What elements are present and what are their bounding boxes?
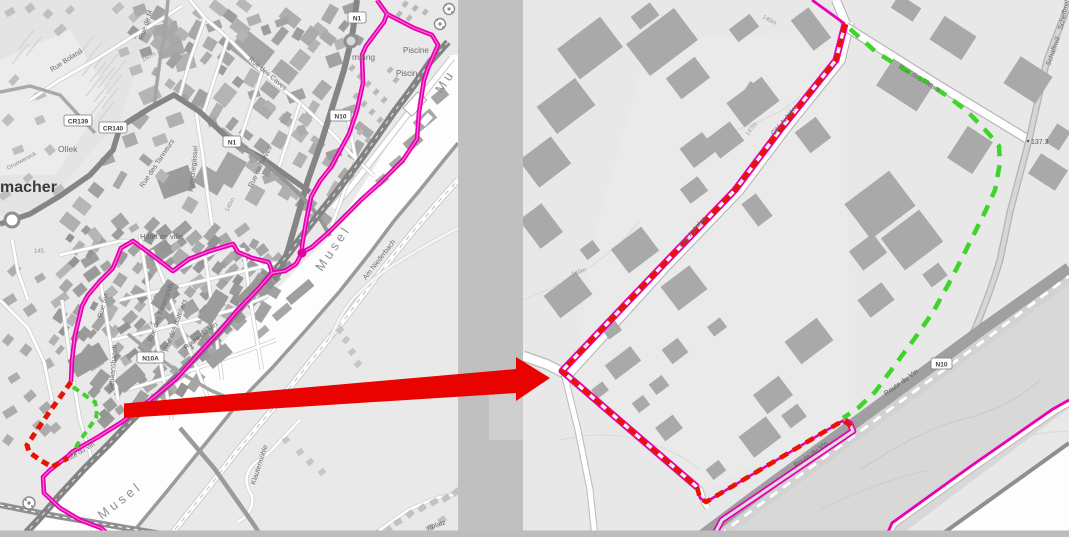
svg-text:macher: macher — [0, 179, 57, 196]
svg-text:N10: N10 — [335, 114, 347, 121]
svg-text:137.3: 137.3 — [1031, 139, 1049, 146]
svg-text:Ollek: Ollek — [58, 144, 78, 154]
svg-text:N10A: N10A — [142, 356, 159, 363]
svg-text:Piscine: Piscine — [403, 46, 429, 55]
svg-text:N10: N10 — [936, 362, 948, 369]
svg-text:N1: N1 — [228, 140, 237, 147]
svg-text:145: 145 — [34, 249, 45, 255]
svg-text:CR140: CR140 — [103, 126, 124, 133]
svg-text:CR139: CR139 — [68, 119, 89, 126]
svg-text:mping: mping — [352, 52, 375, 62]
svg-text:N1: N1 — [353, 16, 362, 23]
svg-text:Piscin: Piscin — [396, 69, 417, 78]
svg-text:Hôtel de ville: Hôtel de ville — [140, 232, 183, 241]
